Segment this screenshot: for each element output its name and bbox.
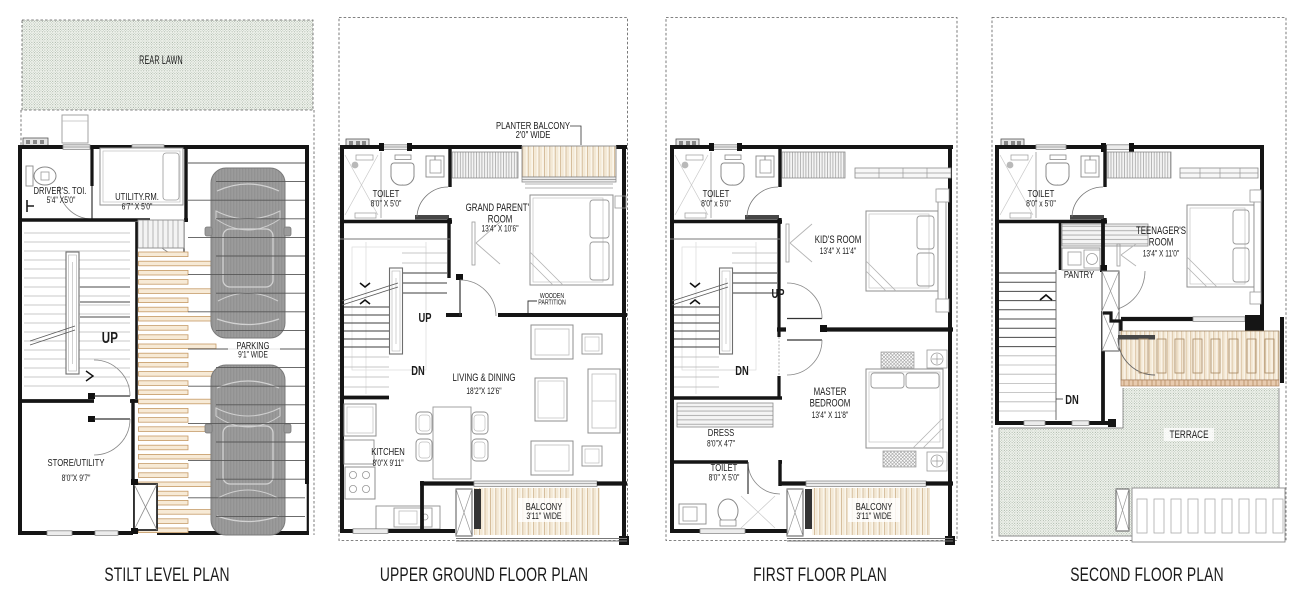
svg-text:PARTITION: PARTITION: [538, 299, 566, 307]
svg-text:3'11" WIDE: 3'11" WIDE: [856, 510, 892, 521]
svg-text:8'0"X 9'7": 8'0"X 9'7": [62, 473, 91, 483]
svg-text:2'0" WIDE: 2'0" WIDE: [516, 129, 551, 140]
svg-text:UP: UP: [772, 288, 785, 302]
svg-text:UP: UP: [419, 312, 432, 326]
svg-text:KITCHEN: KITCHEN: [371, 446, 405, 457]
svg-text:PANTRY: PANTRY: [1064, 269, 1094, 280]
svg-text:KID'S ROOM: KID'S ROOM: [815, 234, 862, 247]
svg-text:UPPER GROUND FLOOR PLAN: UPPER GROUND FLOOR PLAN: [380, 564, 588, 586]
svg-text:REAR LAWN: REAR LAWN: [139, 54, 183, 67]
svg-text:13'4" X 11'4": 13'4" X 11'4": [820, 246, 857, 256]
svg-text:ROOM: ROOM: [1149, 236, 1174, 249]
svg-text:8'0" X 5'0": 8'0" X 5'0": [371, 199, 402, 209]
svg-text:DN: DN: [1065, 394, 1078, 408]
svg-text:8'0"X 4'7": 8'0"X 4'7": [707, 439, 735, 449]
svg-text:STORE/UTILITY: STORE/UTILITY: [48, 457, 105, 468]
svg-text:TERRACE: TERRACE: [1169, 429, 1208, 442]
svg-text:UP: UP: [102, 328, 118, 346]
svg-text:DN: DN: [411, 365, 424, 379]
svg-text:6'7" X 5'0": 6'7" X 5'0": [122, 202, 153, 212]
svg-text:FIRST FLOOR PLAN: FIRST FLOOR PLAN: [753, 564, 887, 586]
svg-text:SECOND FLOOR PLAN: SECOND FLOOR PLAN: [1070, 564, 1223, 586]
svg-text:DN: DN: [735, 365, 748, 379]
svg-text:LIVING & DINING: LIVING & DINING: [453, 372, 516, 385]
svg-text:8'0"X 9'11": 8'0"X 9'11": [372, 458, 403, 468]
svg-text:8'0" x 5'0": 8'0" x 5'0": [701, 199, 731, 209]
svg-text:BEDROOM: BEDROOM: [810, 397, 851, 410]
svg-text:8'0" X 5'0": 8'0" X 5'0": [709, 473, 740, 483]
svg-text:13'4" X 10'6": 13'4" X 10'6": [481, 224, 518, 234]
svg-text:13'4" X 11'0": 13'4" X 11'0": [1143, 249, 1180, 259]
svg-text:9'1" WIDE: 9'1" WIDE: [238, 350, 268, 360]
svg-text:18'2"X 12'6": 18'2"X 12'6": [466, 386, 501, 396]
svg-text:DRESS: DRESS: [708, 427, 734, 438]
svg-text:3'11" WIDE: 3'11" WIDE: [526, 510, 562, 521]
svg-text:8'0" x 5'0": 8'0" x 5'0": [1026, 199, 1056, 209]
svg-text:5'4" X5'0": 5'4" X5'0": [47, 195, 76, 205]
svg-text:13'4" X 11'8": 13'4" X 11'8": [812, 410, 849, 420]
svg-text:STILT LEVEL PLAN: STILT LEVEL PLAN: [104, 564, 229, 586]
